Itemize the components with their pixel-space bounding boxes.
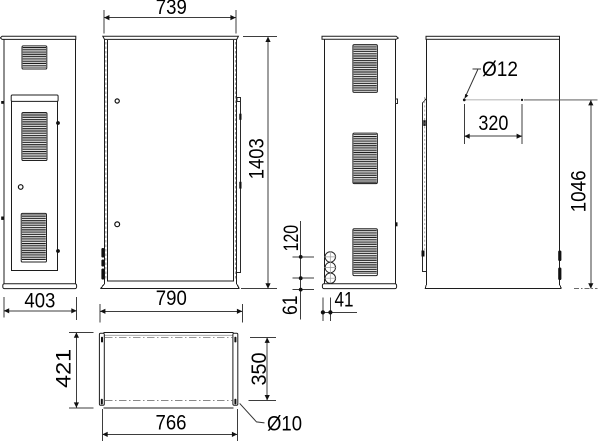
svg-text:120: 120 [280,225,303,252]
svg-text:320: 320 [478,112,508,135]
svg-text:739: 739 [156,0,187,19]
svg-text:790: 790 [156,287,187,310]
svg-text:61: 61 [279,295,302,315]
svg-text:421: 421 [52,349,75,388]
svg-text:1403: 1403 [245,138,268,179]
svg-text:403: 403 [24,289,55,312]
svg-text:350: 350 [248,353,271,386]
svg-text:41: 41 [335,289,354,312]
svg-text:Ø12: Ø12 [482,58,518,81]
svg-text:766: 766 [156,412,187,435]
svg-text:Ø10: Ø10 [267,413,302,436]
svg-text:1046: 1046 [568,170,591,212]
